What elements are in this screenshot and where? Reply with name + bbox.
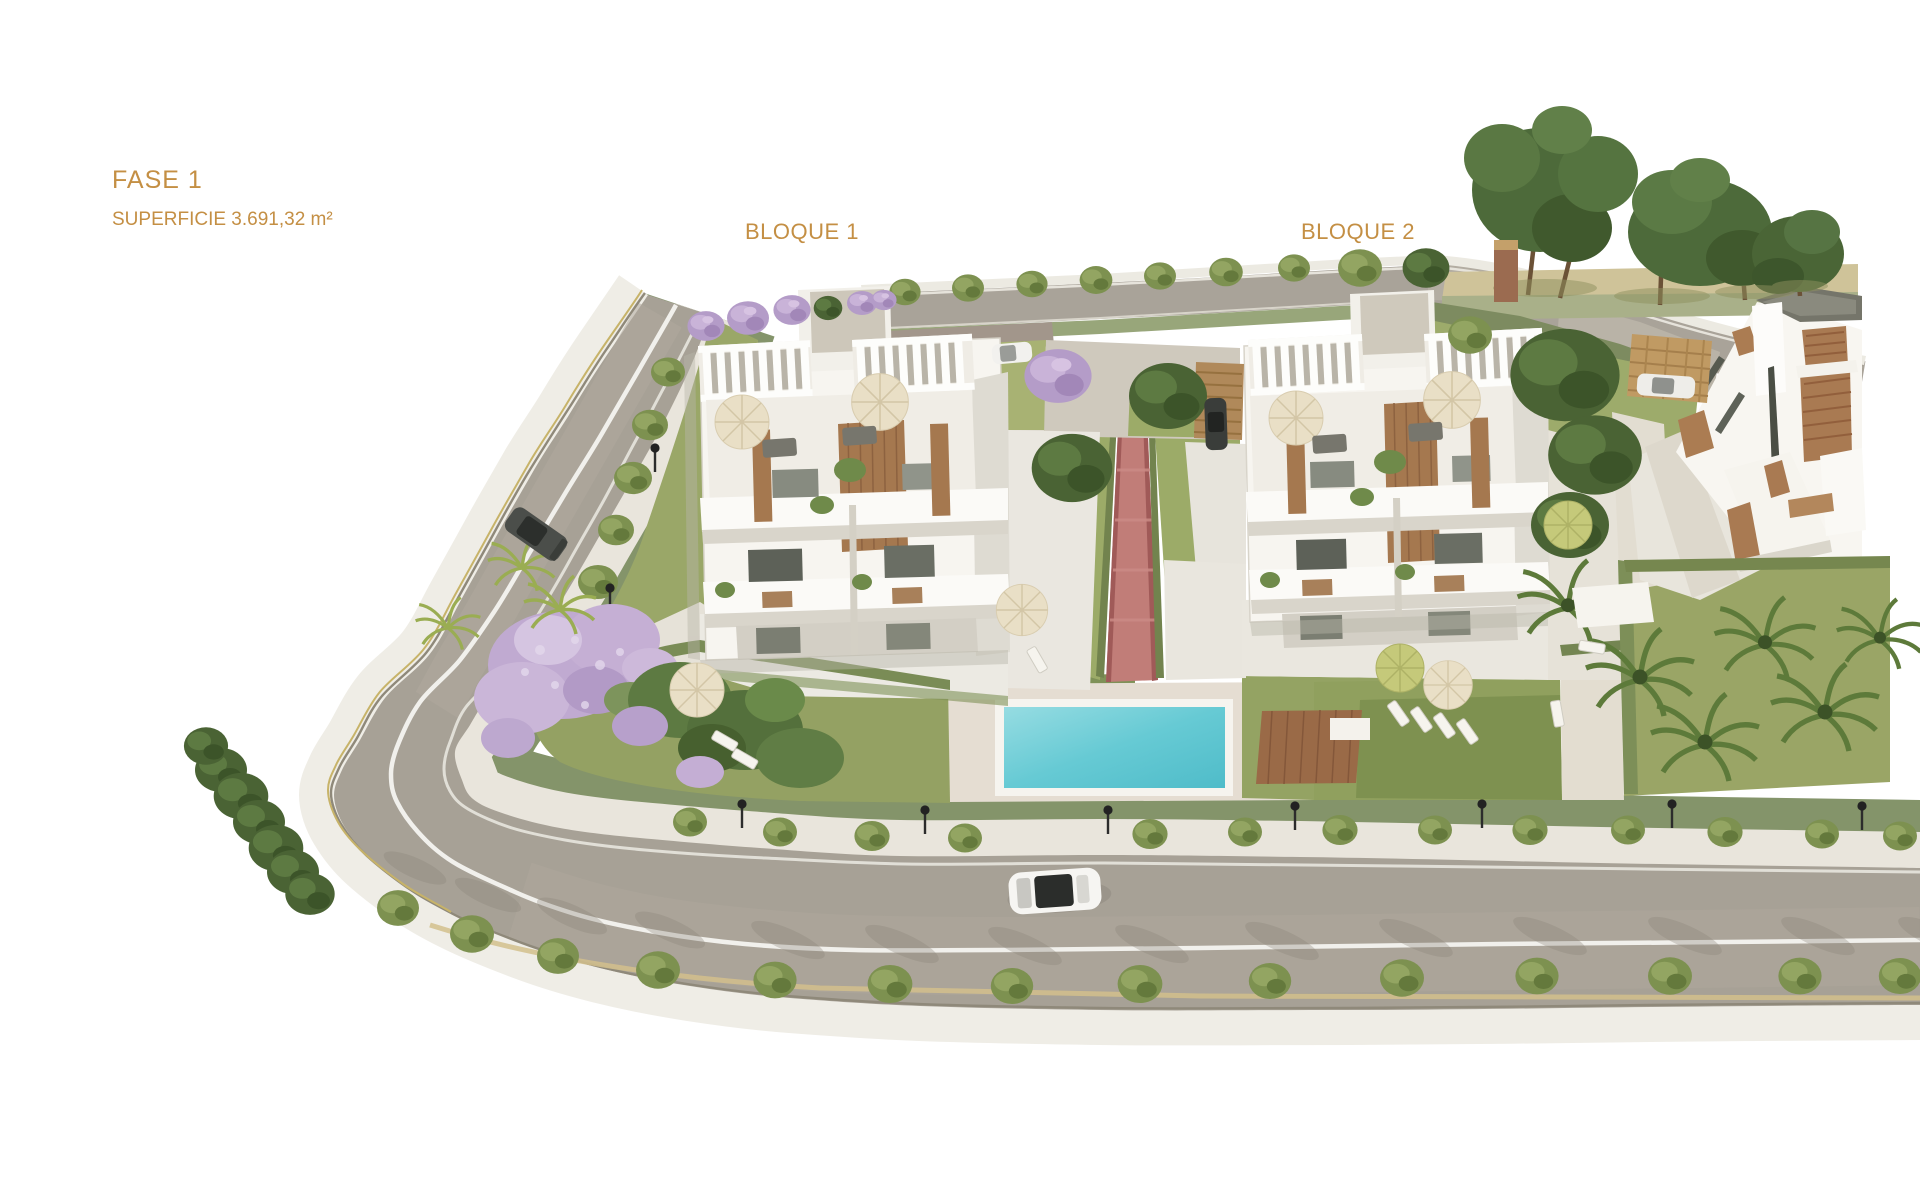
svg-text:BLOQUE 1: BLOQUE 1 (745, 219, 859, 244)
svg-text:BLOQUE 2: BLOQUE 2 (1301, 219, 1415, 244)
svg-text:SUPERFICIE 3.691,32 m²: SUPERFICIE 3.691,32 m² (112, 209, 333, 230)
svg-text:FASE 1: FASE 1 (112, 166, 203, 194)
